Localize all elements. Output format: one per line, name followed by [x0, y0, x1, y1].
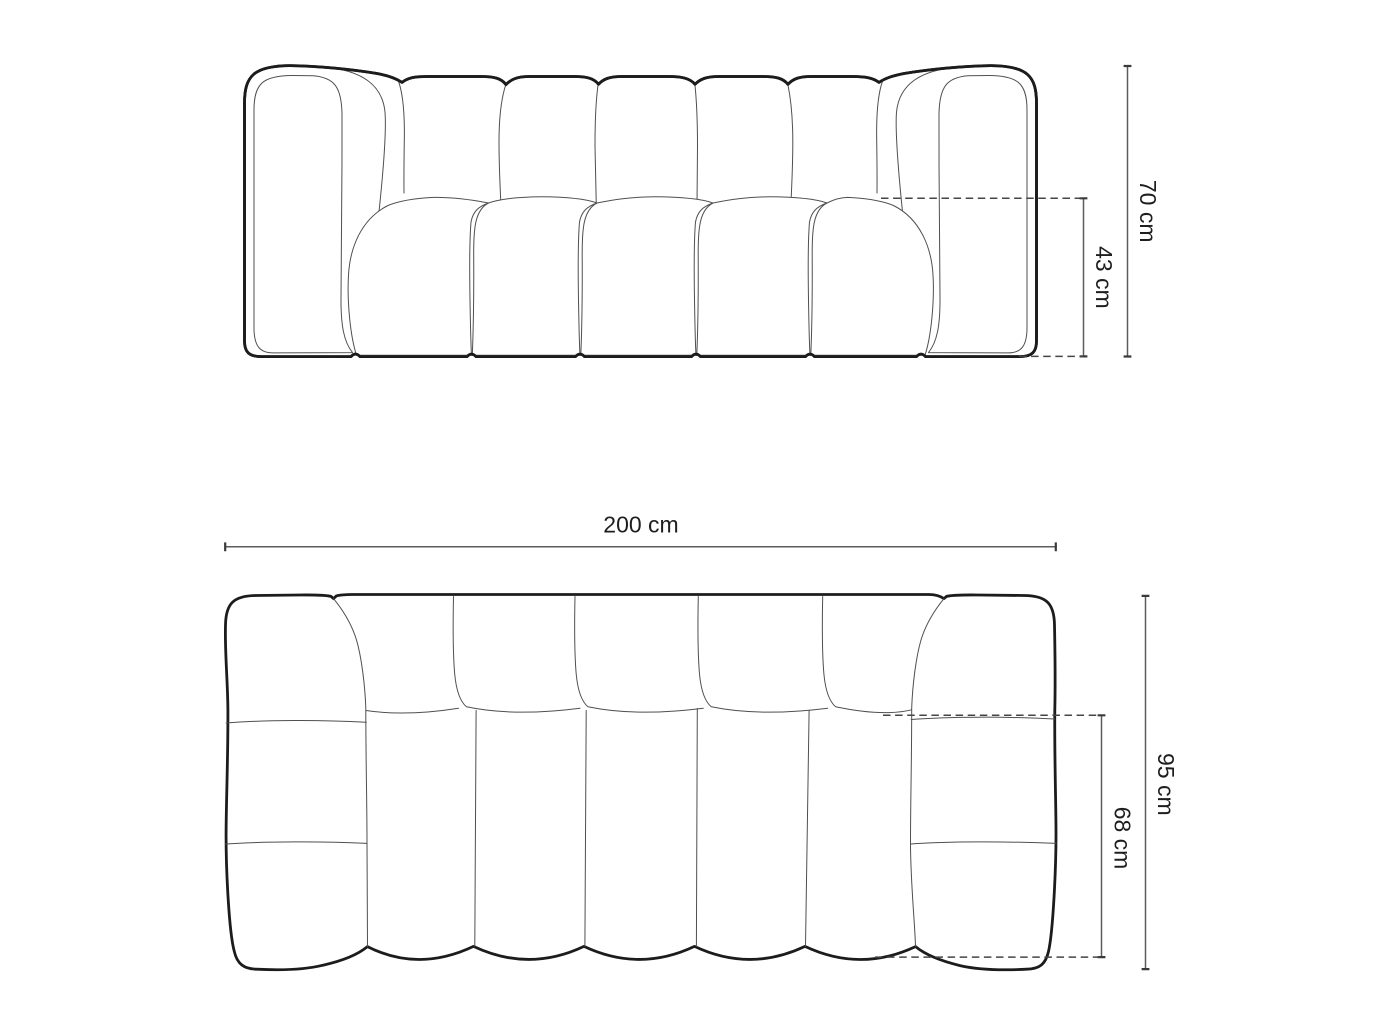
- svg-text:95 cm: 95 cm: [1153, 753, 1179, 816]
- svg-text:200 cm: 200 cm: [603, 512, 678, 538]
- svg-text:43 cm: 43 cm: [1091, 246, 1117, 309]
- svg-text:68 cm: 68 cm: [1109, 807, 1135, 870]
- svg-text:70 cm: 70 cm: [1135, 180, 1161, 243]
